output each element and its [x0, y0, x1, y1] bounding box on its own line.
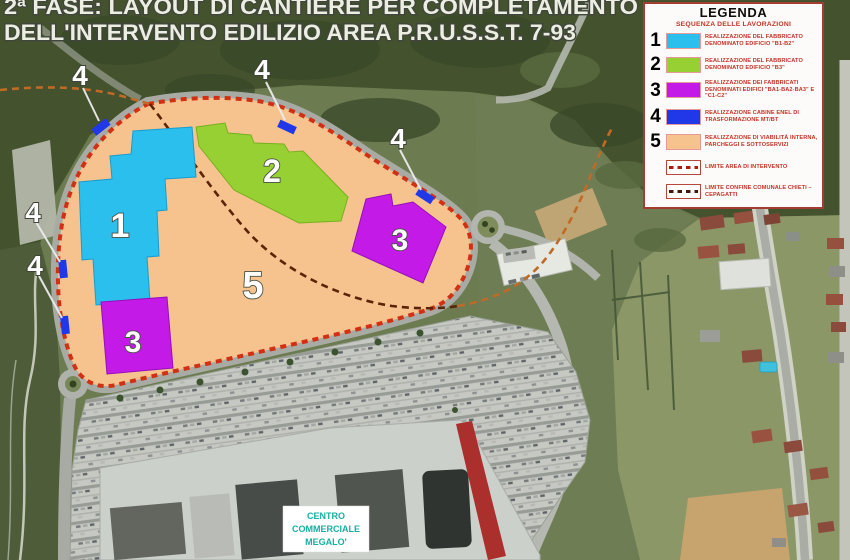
legend-item-label: REALIZZAZIONE DI VIABILITÀ INTERNA, PARC… [705, 135, 819, 148]
zone-label-3-south: 3 [125, 326, 142, 359]
mall-label-line2: COMMERCIALE [292, 524, 360, 534]
legend-title: LEGENDA [645, 5, 822, 20]
legend-item-label: REALIZZAZIONE DEL FABBRICATO DENOMINATO … [705, 34, 819, 47]
marker-label-4e: 4 [27, 250, 43, 281]
mall-label-line1: CENTRO [307, 511, 345, 521]
legend-swatch-cyan [666, 33, 701, 49]
road-south-spur [64, 398, 70, 560]
legend-panel: LEGENDA SEQUENZA DELLE LAVORAZIONI 1 REA… [643, 2, 824, 209]
pool-house [742, 349, 763, 363]
legend-line-label: LIMITE AREA DI INTERVENTO [705, 164, 787, 171]
legend-item-2: 2 REALIZZAZIONE DEL FABBRICATO DENOMINAT… [649, 55, 819, 74]
legend-swatch-purple [666, 82, 701, 98]
zone-label-3-east: 3 [392, 224, 409, 257]
legend-item-5: 5 REALIZZAZIONE DI VIABILITÀ INTERNA, PA… [649, 132, 819, 151]
marker-label-4c: 4 [390, 123, 406, 154]
legend-line-item-2: LIMITE CONFINE COMUNALE CHIETI – CEPAGAT… [649, 184, 819, 199]
legend-line-item-1: LIMITE AREA DI INTERVENTO [649, 160, 819, 175]
legend-swatch-orange [666, 134, 701, 150]
legend-dash-dark [666, 184, 701, 199]
shed-building [700, 330, 720, 342]
mall-label: CENTRO COMMERCIALE MEGALO' [283, 506, 369, 552]
legend-item-3: 3 REALIZZAZIONE DEI FABBRICATI DENOMINAT… [649, 80, 819, 100]
legend-swatch-blue [666, 109, 701, 125]
marker-label-4a: 4 [72, 60, 88, 91]
marker-label-4d: 4 [25, 197, 41, 228]
zone-label-1: 1 [111, 207, 130, 245]
site-plan-screenshot: CENTRO COMMERCIALE MEGALO' [0, 0, 850, 560]
mall-label-line3: MEGALO' [305, 537, 347, 547]
legend-item-1: 1 REALIZZAZIONE DEL FABBRICATO DENOMINAT… [649, 31, 819, 50]
zone-label-2: 2 [263, 153, 281, 189]
legend-item-number: 2 [649, 55, 662, 74]
legend-item-number: 3 [649, 81, 662, 100]
legend-item-label: REALIZZAZIONE DEL FABBRICATO DENOMINATO … [705, 58, 819, 71]
legend-dash-red [666, 160, 701, 175]
legend-item-4: 4 REALIZZAZIONE CABINE ENEL DI TRASFORMA… [649, 107, 819, 126]
legend-line-label: LIMITE CONFINE COMUNALE CHIETI – CEPAGAT… [705, 185, 819, 198]
swimming-pool [760, 362, 777, 372]
title-line2: DELL'INTERVENTO EDILIZIO AREA P.R.U.S.S.… [4, 20, 576, 45]
legend-item-label: REALIZZAZIONE CABINE ENEL DI TRASFORMAZI… [705, 110, 819, 123]
legend-item-number: 5 [649, 132, 662, 151]
legend-swatch-green [666, 57, 701, 73]
legend-item-label: REALIZZAZIONE DEI FABBRICATI DENOMINATI … [705, 80, 819, 100]
commercial-building [719, 258, 771, 289]
legend-item-number: 1 [649, 31, 662, 50]
title-line1: 2ª FASE: LAYOUT DI CANTIERE PER COMPLETA… [4, 0, 638, 19]
legend-subtitle: SEQUENZA DELLE LAVORAZIONI [645, 21, 822, 28]
plowed-field [680, 488, 790, 560]
legend-item-number: 4 [649, 107, 662, 126]
clearing [12, 140, 58, 245]
page-title: 2ª FASE: LAYOUT DI CANTIERE PER COMPLETA… [4, 0, 638, 45]
zone-label-5: 5 [242, 265, 263, 307]
marker-label-4b: 4 [254, 54, 270, 85]
